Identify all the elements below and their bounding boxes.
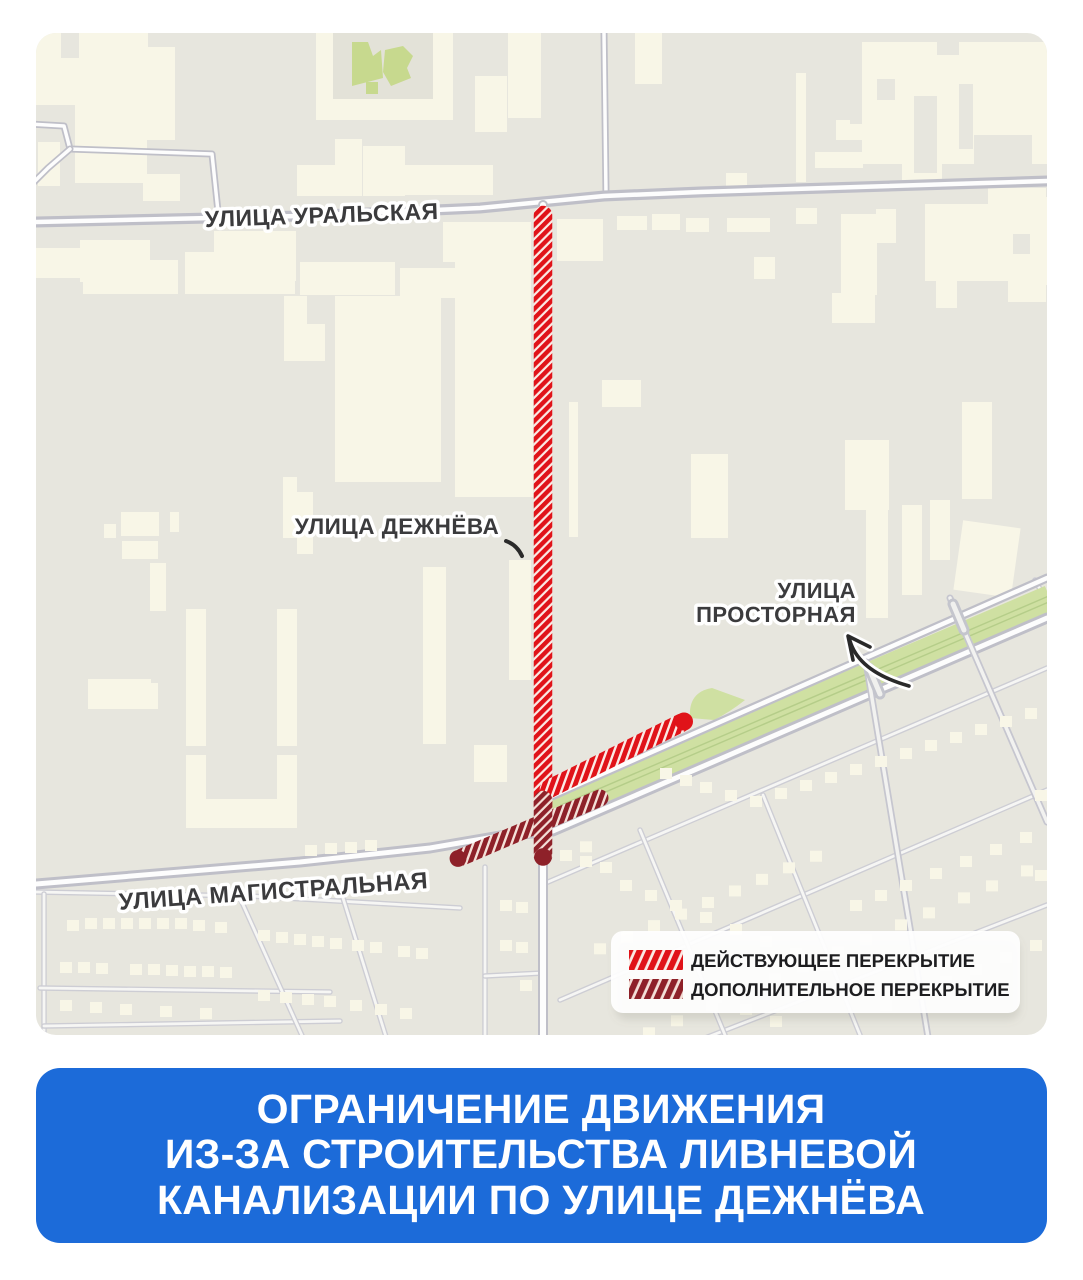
svg-text:ИЗ-ЗА СТРОИТЕЛЬСТВА ЛИВНЕВОЙ: ИЗ-ЗА СТРОИТЕЛЬСТВА ЛИВНЕВОЙ [165, 1130, 917, 1177]
svg-text:ДОПОЛНИТЕЛЬНОЕ ПЕРЕКРЫТИЕ: ДОПОЛНИТЕЛЬНОЕ ПЕРЕКРЫТИЕ [691, 979, 1010, 1000]
svg-text:ДЕЙСТВУЮЩЕЕ ПЕРЕКРЫТИЕ: ДЕЙСТВУЮЩЕЕ ПЕРЕКРЫТИЕ [691, 950, 975, 971]
svg-text:УЛИЦА ДЕЖНЁВА: УЛИЦА ДЕЖНЁВА [295, 514, 500, 539]
svg-text:УЛИЦА: УЛИЦА [777, 578, 856, 603]
svg-text:ОГРАНИЧЕНИЕ ДВИЖЕНИЯ: ОГРАНИЧЕНИЕ ДВИЖЕНИЯ [257, 1086, 826, 1132]
svg-text:ПРОСТОРНАЯ: ПРОСТОРНАЯ [696, 602, 856, 627]
svg-text:КАНАЛИЗАЦИИ ПО УЛИЦЕ ДЕЖНЁВА: КАНАЛИЗАЦИИ ПО УЛИЦЕ ДЕЖНЁВА [157, 1177, 925, 1223]
